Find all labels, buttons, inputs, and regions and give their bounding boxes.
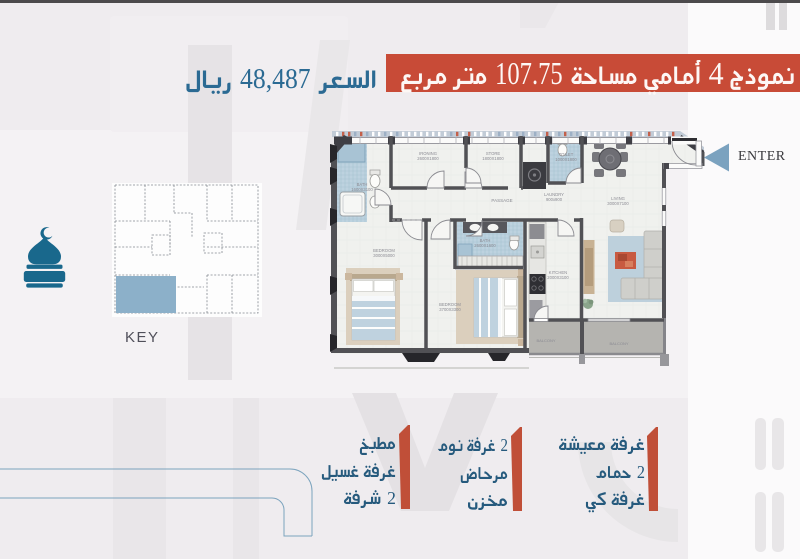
svg-text:2: 2 (387, 488, 396, 508)
svg-text:2: 2 (637, 462, 645, 482)
svg-text:2: 2 (501, 435, 508, 456)
